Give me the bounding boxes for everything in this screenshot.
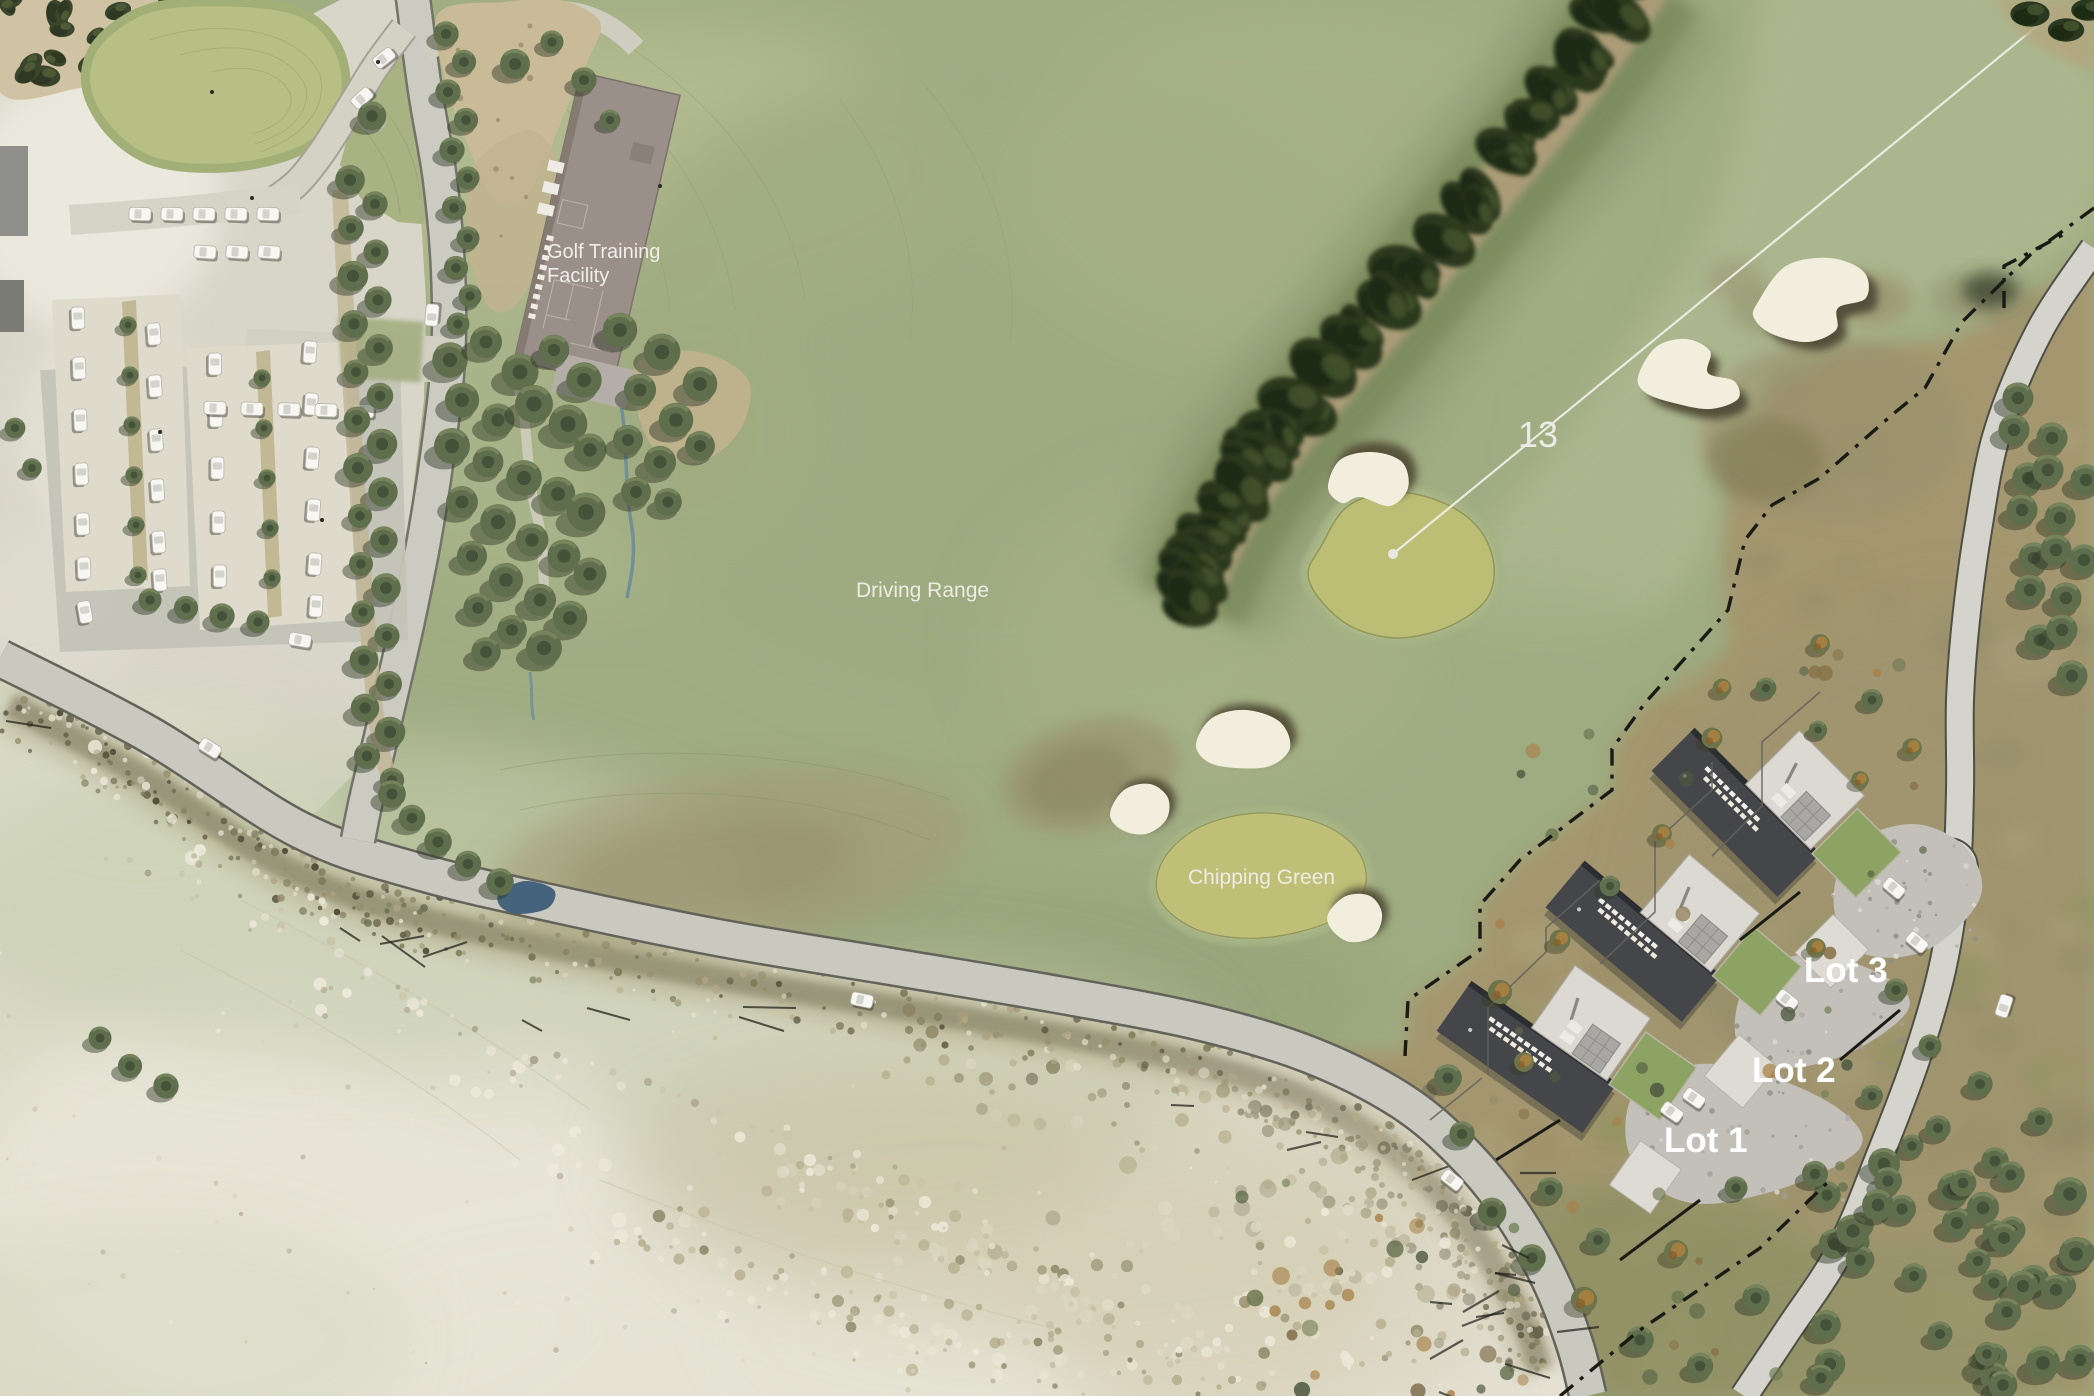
svg-text:Lot 2: Lot 2 bbox=[1752, 1051, 1836, 1090]
svg-text:Lot 1: Lot 1 bbox=[1664, 1121, 1748, 1160]
svg-text:Lot 3: Lot 3 bbox=[1804, 951, 1888, 990]
svg-text:Driving Range: Driving Range bbox=[856, 579, 989, 602]
svg-text:Chipping Green: Chipping Green bbox=[1188, 866, 1335, 889]
svg-text:13: 13 bbox=[1518, 414, 1558, 455]
